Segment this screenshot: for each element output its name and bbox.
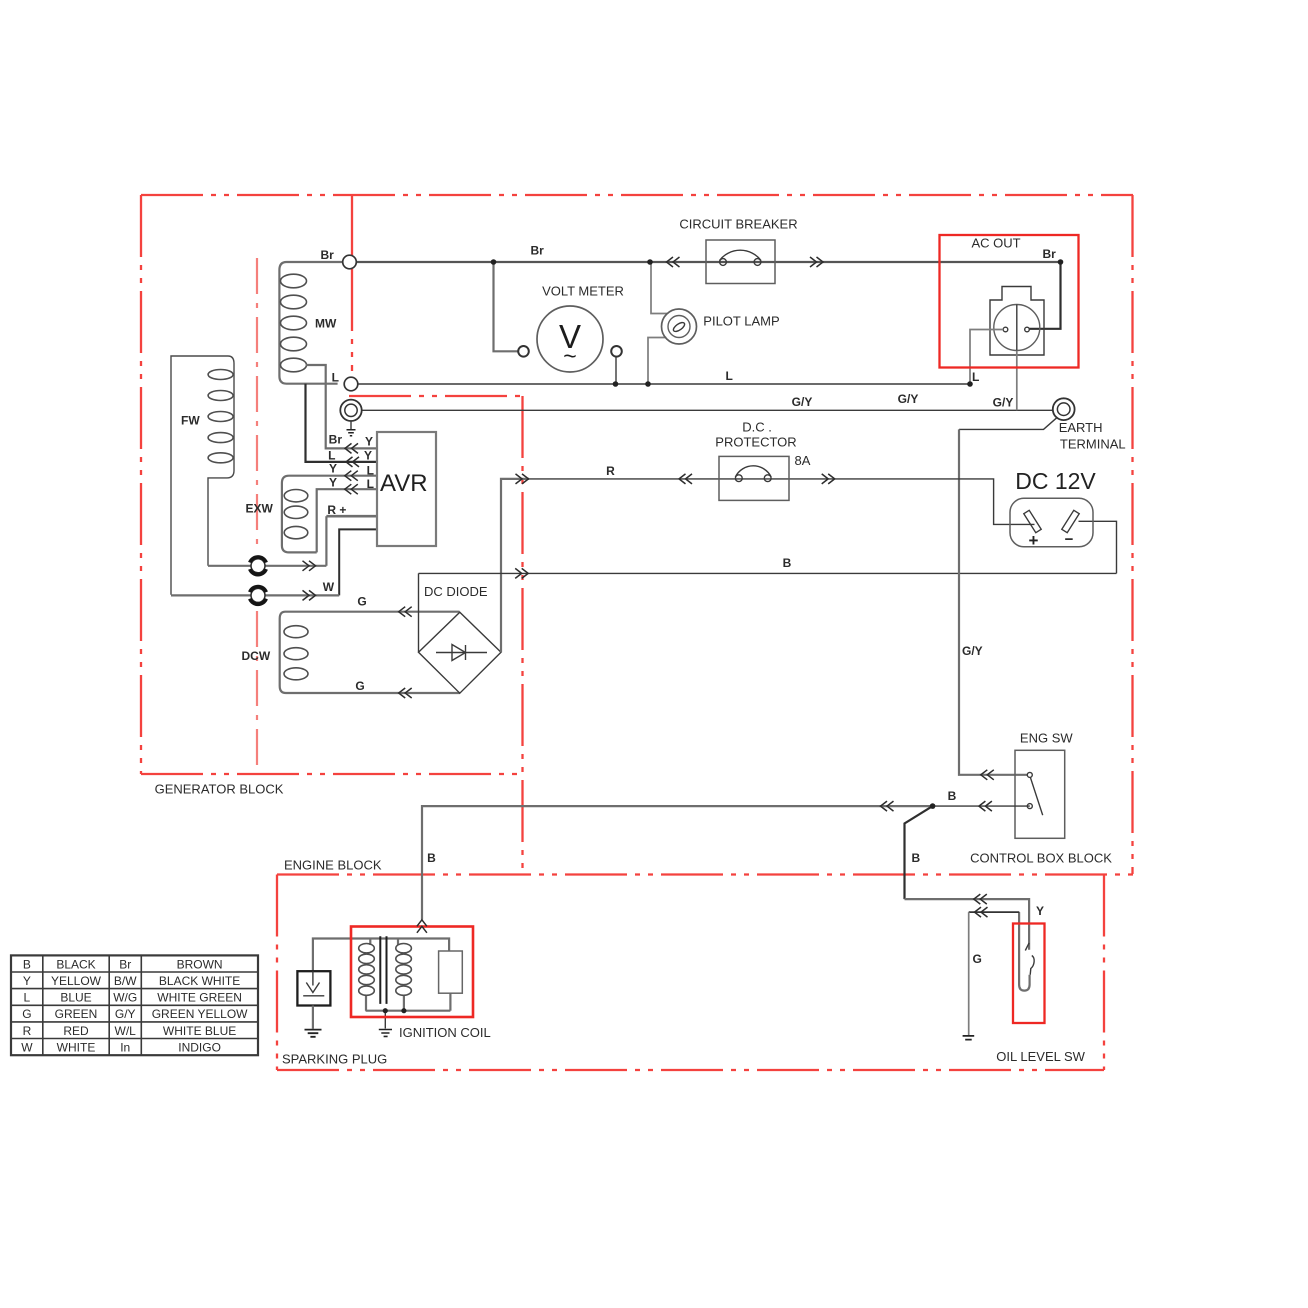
svg-text:In: In	[120, 1041, 130, 1055]
svg-text:W: W	[21, 1041, 33, 1055]
svg-text:G: G	[22, 1007, 31, 1021]
svg-text:DCW: DCW	[242, 649, 271, 663]
svg-text:BLACK WHITE: BLACK WHITE	[159, 974, 240, 988]
svg-text:ENGINE BLOCK: ENGINE BLOCK	[284, 857, 382, 872]
svg-text:YELLOW: YELLOW	[51, 974, 102, 988]
svg-text:OIL LEVEL SW: OIL LEVEL SW	[996, 1049, 1085, 1064]
svg-text:G/Y: G/Y	[962, 644, 983, 658]
svg-text:PROTECTOR: PROTECTOR	[715, 435, 796, 450]
svg-text:G/Y: G/Y	[993, 396, 1014, 410]
svg-text:EARTH: EARTH	[1059, 420, 1103, 435]
svg-text:W: W	[323, 580, 335, 594]
svg-text:Br: Br	[531, 244, 545, 258]
svg-text:W/G: W/G	[113, 991, 137, 1005]
svg-text:GREEN: GREEN	[55, 1007, 98, 1021]
svg-text:~: ~	[563, 343, 576, 369]
svg-text:EXW: EXW	[246, 502, 274, 516]
svg-text:IGNITION COIL: IGNITION COIL	[399, 1025, 491, 1040]
svg-text:L: L	[972, 370, 979, 384]
svg-text:B: B	[23, 957, 31, 971]
svg-text:G/Y: G/Y	[792, 395, 813, 409]
svg-text:MW: MW	[315, 317, 337, 331]
svg-text:−: −	[1065, 531, 1074, 548]
svg-text:BLUE: BLUE	[60, 991, 91, 1005]
svg-text:WHITE: WHITE	[57, 1041, 96, 1055]
svg-text:VOLT METER: VOLT METER	[542, 283, 624, 298]
svg-text:GREEN YELLOW: GREEN YELLOW	[152, 1007, 248, 1021]
svg-text:L: L	[367, 464, 374, 478]
svg-text:AVR: AVR	[380, 470, 428, 497]
svg-text:CONTROL BOX BLOCK: CONTROL BOX BLOCK	[970, 850, 1112, 865]
svg-text:Br: Br	[321, 248, 335, 262]
svg-text:CIRCUIT BREAKER: CIRCUIT BREAKER	[679, 216, 797, 231]
svg-text:B: B	[912, 851, 921, 865]
svg-text:Br: Br	[1043, 247, 1057, 261]
svg-text:WHITE BLUE: WHITE BLUE	[163, 1024, 236, 1038]
svg-text:L: L	[24, 991, 31, 1005]
svg-text:BROWN: BROWN	[177, 957, 223, 971]
svg-text:PILOT LAMP: PILOT LAMP	[703, 314, 779, 329]
svg-text:Y: Y	[364, 448, 372, 462]
svg-text:R: R	[23, 1024, 32, 1038]
svg-text:DC DIODE: DC DIODE	[424, 584, 488, 599]
svg-text:B: B	[948, 789, 957, 803]
svg-text:G: G	[357, 595, 366, 609]
svg-text:R: R	[606, 464, 615, 478]
svg-text:Br: Br	[329, 433, 343, 447]
svg-text:W/L: W/L	[115, 1024, 137, 1038]
svg-text:L: L	[367, 477, 374, 491]
svg-text:Y: Y	[1036, 904, 1044, 918]
svg-text:SPARKING PLUG: SPARKING PLUG	[282, 1051, 387, 1066]
svg-text:Y: Y	[329, 462, 337, 476]
svg-text:Y: Y	[23, 974, 31, 988]
svg-text:D.C .: D.C .	[742, 420, 772, 435]
svg-text:G/Y: G/Y	[898, 392, 919, 406]
svg-text:8A: 8A	[795, 453, 811, 468]
svg-text:L: L	[332, 371, 339, 385]
svg-text:INDIGO: INDIGO	[178, 1041, 221, 1055]
svg-text:Y: Y	[365, 434, 373, 448]
svg-text:L: L	[328, 449, 335, 463]
svg-text:G: G	[355, 679, 364, 693]
svg-text:B: B	[783, 556, 792, 570]
svg-text:G/Y: G/Y	[115, 1007, 136, 1021]
svg-text:ENG SW: ENG SW	[1020, 731, 1073, 746]
svg-text:Y: Y	[329, 475, 337, 489]
svg-text:BLACK: BLACK	[56, 957, 95, 971]
svg-text:AC OUT: AC OUT	[971, 235, 1020, 250]
svg-text:+: +	[1029, 531, 1039, 550]
svg-text:B/W: B/W	[114, 974, 137, 988]
svg-text:TERMINAL: TERMINAL	[1060, 437, 1126, 452]
svg-text:FW: FW	[181, 414, 200, 428]
svg-text:L: L	[726, 369, 733, 383]
svg-text:Br: Br	[119, 957, 131, 971]
svg-text:DC 12V: DC 12V	[1015, 468, 1096, 494]
svg-text:R +: R +	[327, 503, 346, 517]
svg-text:WHITE GREEN: WHITE GREEN	[157, 991, 242, 1005]
svg-text:RED: RED	[63, 1024, 89, 1038]
svg-text:B: B	[427, 851, 436, 865]
svg-text:GENERATOR BLOCK: GENERATOR BLOCK	[155, 782, 284, 797]
svg-text:G: G	[973, 952, 982, 966]
